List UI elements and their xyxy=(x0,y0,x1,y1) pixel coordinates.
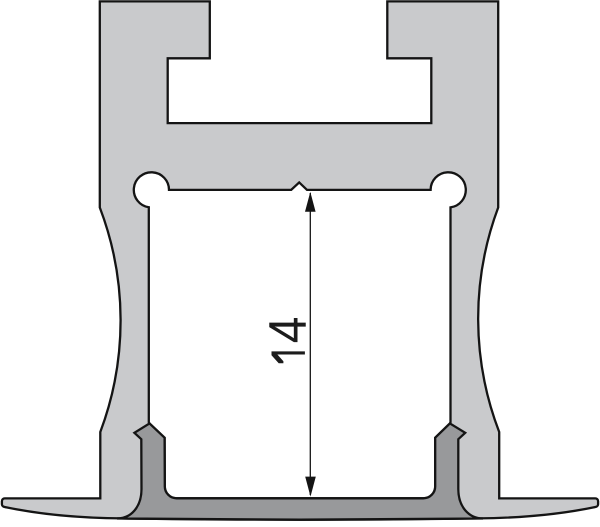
svg-text:4: 4 xyxy=(259,317,318,344)
